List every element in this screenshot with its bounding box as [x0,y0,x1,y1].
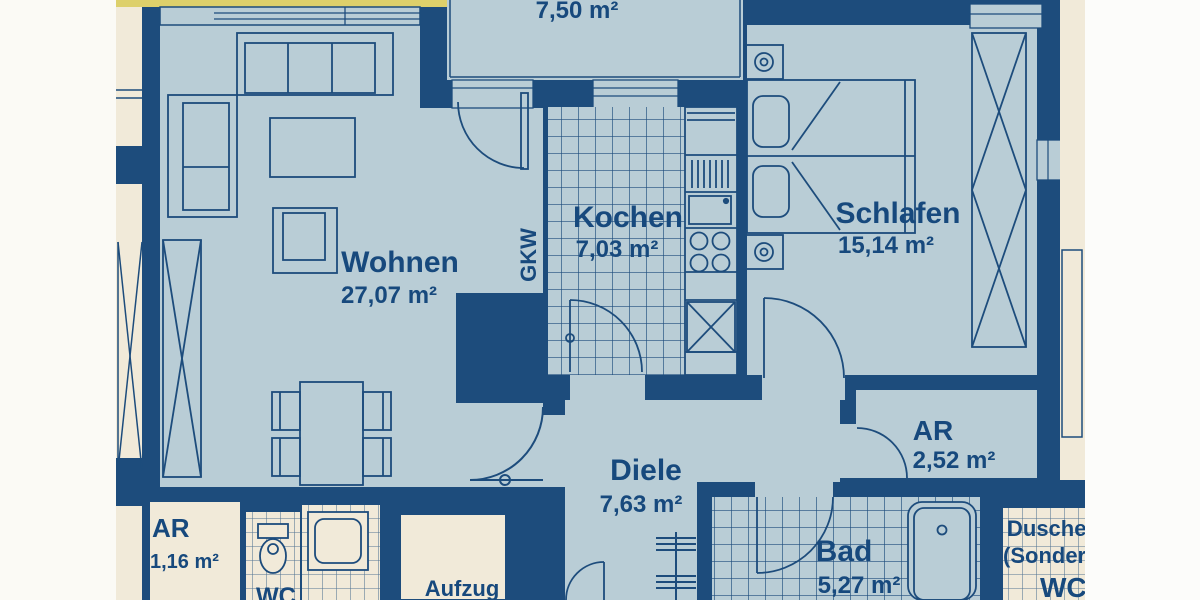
floor-plan-photo: 7,50 m² Wohnen 27,07 m² GKW Kochen 7,03 … [0,0,1200,600]
label-wohnen: Wohnen [341,246,459,279]
label-aufzug: Aufzug [425,576,500,600]
label-schlafen: Schlafen [835,197,960,230]
label-diele: Diele [610,454,682,487]
label-balcony-area: 7,50 m² [536,0,619,24]
wohnen-top-window [160,7,420,25]
label-ar: AR [913,415,953,446]
schlafen-side-window [1037,140,1062,180]
label-ar-neighbor: AR [152,513,190,543]
toilet-icon [258,524,288,573]
kochen-door-opening [570,375,645,400]
yellow-highlight-strip [116,0,452,7]
label-gkw: GKW [516,228,541,282]
label-kochen-area: 7,03 m² [576,236,659,263]
label-wohnen-area: 27,07 m² [341,282,437,309]
label-schlafen-area: 15,14 m² [838,232,934,259]
label-ar-neighbor-area: 1,16 m² [150,551,219,573]
label-bad: Bad [816,535,873,568]
bad-door-opening [755,482,833,497]
vestibule-opening [543,415,565,487]
label-diele-area: 7,63 m² [600,491,683,518]
photo-margin-left [0,0,116,600]
kitchen-window [593,80,678,108]
schlafen-top-window [970,4,1042,28]
label-ar-area: 2,52 m² [913,447,996,474]
label-wc-right: WC [1040,572,1087,600]
label-wc-neighbor: WC [256,583,296,600]
neighbor-right-strip [1060,0,1085,480]
shaft-wall-block [456,293,548,403]
label-bad-area: 5,27 m² [818,572,901,599]
floor-plan-svg: 7,50 m² Wohnen 27,07 m² GKW Kochen 7,03 … [0,0,1200,600]
label-dusche-line1: Dusche [1007,516,1086,541]
schlafen-door-opening [762,375,845,400]
dishrack-icon [692,160,728,188]
label-kochen: Kochen [573,201,683,234]
shower-icon [308,512,368,570]
room-shower-neighbor [302,505,380,600]
kitchen-counter [685,107,737,375]
ar-door-opening [840,424,856,478]
bathtub-icon [908,502,976,600]
neighbor-left-strip [116,0,142,600]
photo-margin-right [1085,0,1200,600]
